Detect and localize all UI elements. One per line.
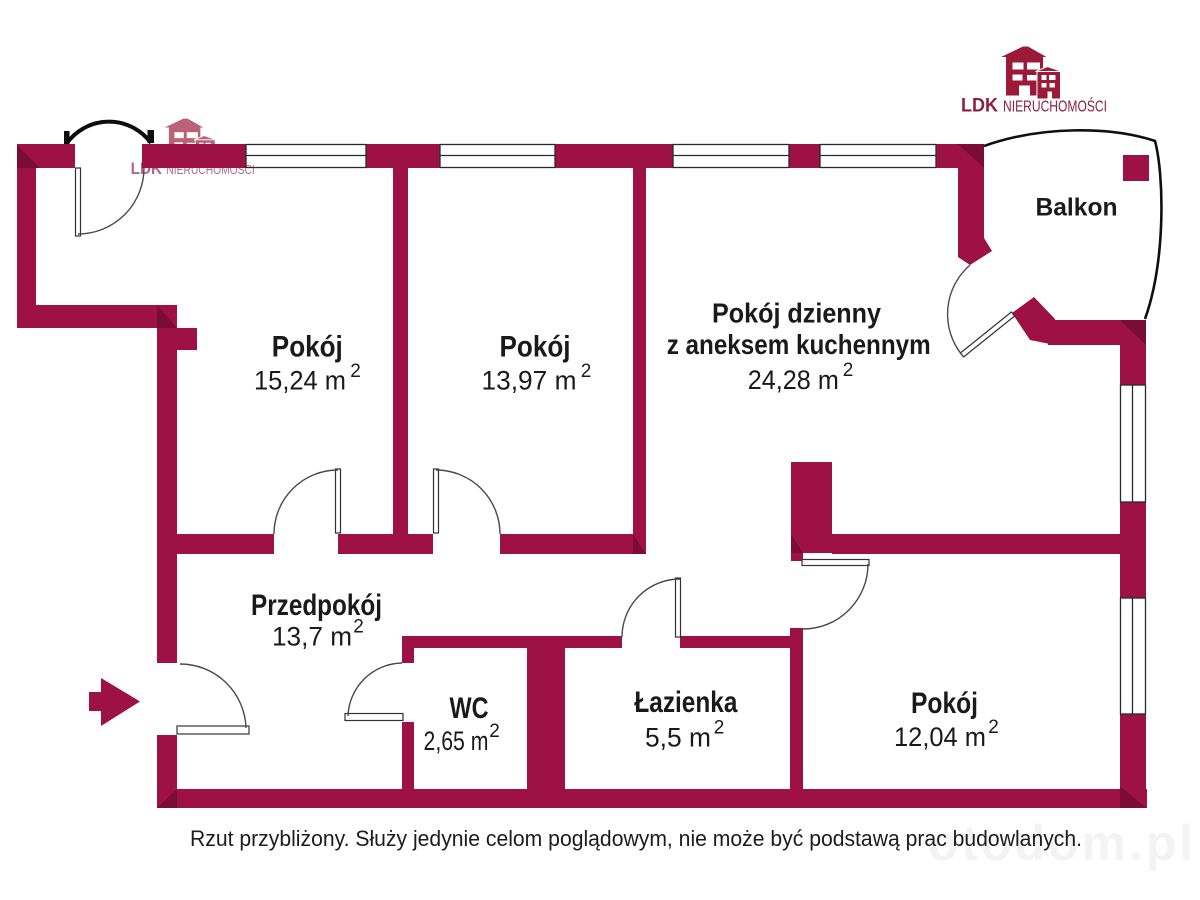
svg-text:2: 2 — [714, 718, 725, 739]
svg-text:13,7 m: 13,7 m — [272, 622, 352, 652]
svg-text:24,28 m: 24,28 m — [748, 365, 839, 395]
svg-text:NIERUCHOMOŚCI: NIERUCHOMOŚCI — [1003, 98, 1107, 116]
svg-text:LDK: LDK — [961, 95, 998, 117]
svg-text:Pokój: Pokój — [911, 687, 978, 720]
svg-text:Pokój: Pokój — [500, 331, 571, 364]
svg-text:Pokój dzienny: Pokój dzienny — [712, 297, 881, 328]
svg-text:Rzut przybliżony. Służy jedyni: Rzut przybliżony. Służy jedynie celom po… — [190, 826, 1082, 851]
svg-text:2: 2 — [581, 361, 592, 382]
svg-text:Łazienka: Łazienka — [634, 686, 737, 719]
svg-text:Pokój: Pokój — [272, 331, 343, 364]
svg-text:z aneksem kuchennym: z aneksem kuchennym — [667, 329, 931, 360]
svg-text:13,97 m: 13,97 m — [482, 365, 577, 395]
svg-text:2: 2 — [489, 721, 500, 742]
svg-text:2: 2 — [353, 617, 364, 638]
svg-text:2,65 m: 2,65 m — [424, 726, 489, 756]
svg-text:5,5 m: 5,5 m — [645, 723, 711, 753]
svg-text:12,04 m: 12,04 m — [894, 722, 986, 752]
svg-text:WC: WC — [450, 692, 489, 725]
svg-text:15,24 m: 15,24 m — [254, 365, 346, 395]
svg-text:2: 2 — [988, 717, 999, 738]
svg-text:Balkon: Balkon — [1036, 194, 1118, 222]
svg-text:2: 2 — [350, 361, 361, 382]
svg-text:2: 2 — [843, 360, 854, 381]
